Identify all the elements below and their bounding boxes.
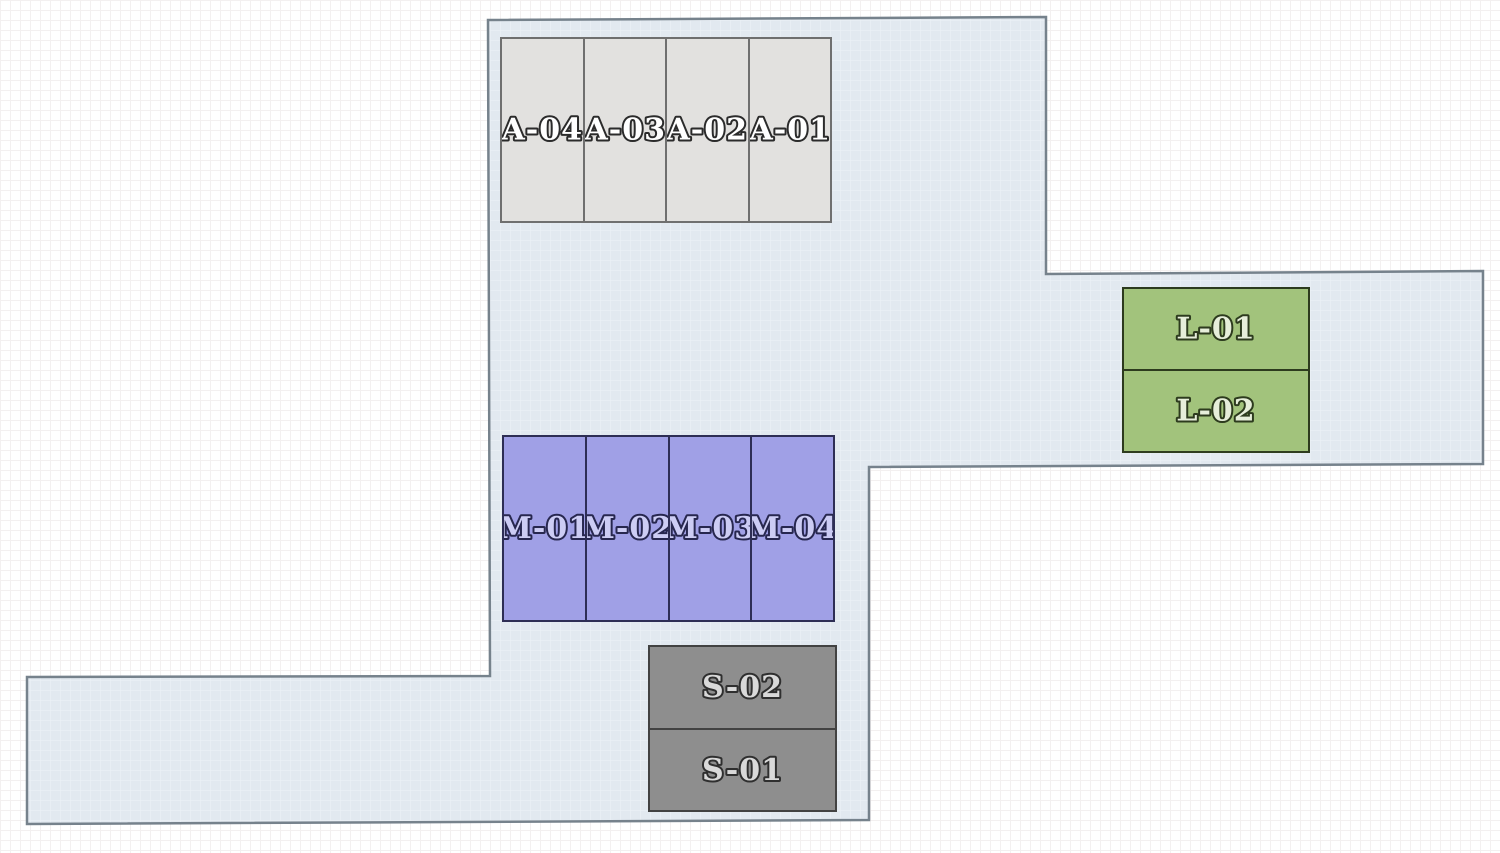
unit-s-01-label: S-01 bbox=[702, 752, 783, 787]
unit-a-03[interactable]: A-03 bbox=[583, 39, 666, 221]
unit-l-01[interactable]: L-01 bbox=[1124, 289, 1308, 369]
unit-a-02[interactable]: A-02 bbox=[665, 39, 748, 221]
unit-a-04[interactable]: A-04 bbox=[502, 39, 583, 221]
unit-m-03[interactable]: M-03 bbox=[668, 437, 751, 620]
unit-a-01-label: A-01 bbox=[750, 113, 831, 148]
unit-m-02-label: M-02 bbox=[587, 511, 668, 546]
block-group-m: M-01 M-02 M-03 M-04 bbox=[502, 435, 835, 622]
unit-a-02-label: A-02 bbox=[667, 113, 748, 148]
unit-m-03-label: M-03 bbox=[670, 511, 751, 546]
block-group-a: A-04 A-03 A-02 A-01 bbox=[500, 37, 832, 223]
unit-s-01[interactable]: S-01 bbox=[650, 728, 835, 811]
unit-l-01-label: L-01 bbox=[1176, 312, 1255, 347]
unit-s-02[interactable]: S-02 bbox=[650, 647, 835, 728]
unit-l-02[interactable]: L-02 bbox=[1124, 369, 1308, 451]
unit-m-04[interactable]: M-04 bbox=[750, 437, 833, 620]
unit-s-02-label: S-02 bbox=[702, 670, 783, 705]
unit-a-04-label: A-04 bbox=[502, 113, 583, 148]
unit-m-02[interactable]: M-02 bbox=[585, 437, 668, 620]
unit-l-02-label: L-02 bbox=[1176, 394, 1255, 429]
block-group-l: L-01 L-02 bbox=[1122, 287, 1310, 453]
block-group-s: S-02 S-01 bbox=[648, 645, 837, 812]
unit-m-01[interactable]: M-01 bbox=[504, 437, 585, 620]
site-plan-canvas: A-04 A-03 A-02 A-01 M-01 M-02 M-03 M-04 … bbox=[0, 0, 1500, 853]
unit-m-01-label: M-01 bbox=[504, 511, 585, 546]
unit-a-03-label: A-03 bbox=[585, 113, 666, 148]
unit-a-01[interactable]: A-01 bbox=[748, 39, 831, 221]
unit-m-04-label: M-04 bbox=[752, 511, 833, 546]
